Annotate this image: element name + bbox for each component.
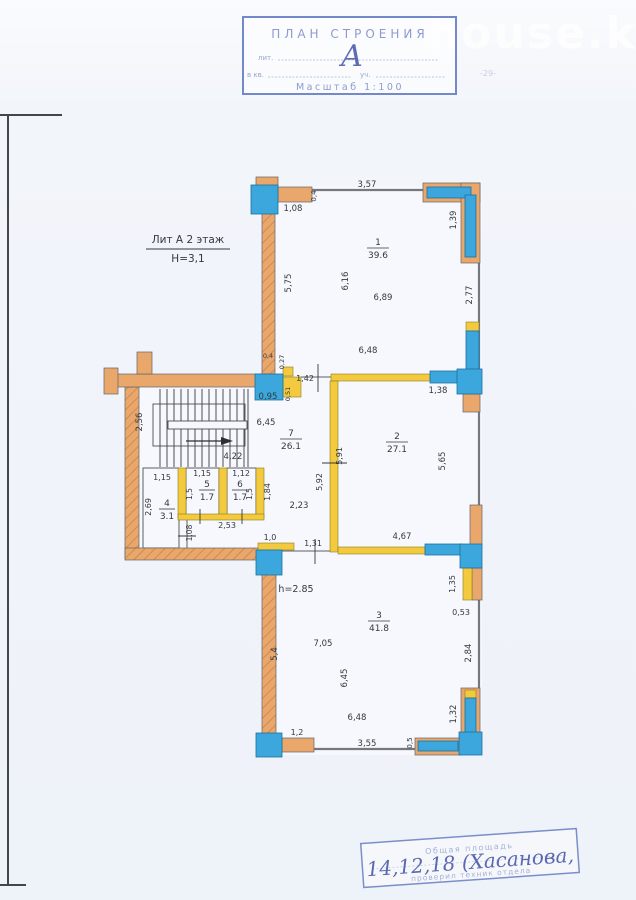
dim-label: 6,48 — [348, 713, 367, 723]
window — [465, 195, 476, 257]
dim-label: 6,89 — [374, 293, 393, 303]
dim-label: 5,65 — [438, 452, 448, 471]
dim-label: 1,42 — [296, 374, 314, 383]
pillar — [459, 732, 482, 755]
watermark-text: house.kg — [428, 8, 636, 59]
wall-segment — [108, 374, 262, 387]
dim-label: 1,15 — [193, 469, 211, 478]
partition-segment — [258, 543, 294, 550]
dim-label: 1,39 — [449, 211, 459, 230]
dim-label: 3,57 — [358, 180, 377, 190]
dim-label: 0,5 — [406, 737, 414, 748]
window — [466, 331, 479, 371]
dim-label: 1,12 — [232, 469, 250, 478]
stamp-uch-label: уч. — [360, 71, 371, 79]
partition-segment — [463, 568, 472, 600]
dim-label: 5,92 — [315, 473, 324, 491]
wall-segment — [278, 187, 312, 202]
stamp-scale: Масштаб 1:100 — [296, 82, 404, 93]
window — [427, 187, 471, 198]
dim-label: 6,16 — [341, 272, 351, 291]
dim-label: 0,95 — [259, 392, 278, 402]
scanned-floor-plan-page: house.kg -29- ПЛАН СТРОЕНИЯ лит. А в кв.… — [0, 0, 636, 900]
dim-label: 4,22 — [224, 452, 243, 462]
room-number: 5 — [204, 480, 210, 490]
dim-label: 1,84 — [263, 483, 272, 501]
stair-stringer — [168, 421, 247, 429]
dim-label: 2,84 — [464, 644, 474, 663]
partition-segment — [331, 374, 430, 381]
floor-label-line2: Н=3,1 — [171, 253, 204, 265]
room-area: 39.6 — [368, 251, 388, 261]
stamp-handwritten-letter: А — [339, 39, 364, 74]
dim-label: 1,08 — [284, 204, 303, 214]
pillar — [251, 185, 278, 214]
dim-label: 7,05 — [314, 639, 333, 649]
room-number: 2 — [394, 432, 400, 442]
dim-label: 5,75 — [284, 274, 294, 293]
dim-label: 1,2 — [291, 728, 304, 737]
stamp-lit-label: лит. — [258, 54, 273, 62]
window-cap — [465, 690, 476, 698]
dim-label: 5,4 — [270, 647, 280, 661]
dim-label: 1,5 — [185, 488, 194, 500]
wall-segment — [470, 505, 482, 548]
dim-label: 4,67 — [393, 532, 412, 542]
floor-plan-svg: house.kg -29- ПЛАН СТРОЕНИЯ лит. А в кв.… — [0, 0, 636, 900]
room-area: 26.1 — [281, 442, 301, 452]
dim-label: 0,4 — [263, 352, 273, 360]
room-area: 1.7 — [200, 493, 214, 503]
pillar — [460, 544, 482, 568]
dim-label: 0,27 — [278, 355, 286, 369]
dim-label: 2,77 — [465, 286, 475, 305]
wall-segment — [463, 394, 480, 412]
dim-label: h=2.85 — [278, 584, 313, 595]
dim-label: 1,35 — [448, 575, 457, 593]
dim-label: 1,15 — [153, 473, 171, 482]
dim-label: 2,53 — [218, 521, 236, 530]
pilaster — [137, 352, 152, 374]
pillar — [457, 369, 482, 394]
window — [418, 741, 458, 751]
wall-segment — [472, 568, 482, 600]
partition-segment — [330, 381, 338, 552]
dim-label: 5,91 — [335, 447, 344, 465]
wall-segment — [262, 188, 275, 374]
title-stamp: ПЛАН СТРОЕНИЯ лит. А в кв. уч. Масштаб 1… — [243, 17, 456, 94]
page-mark: -29- — [480, 69, 496, 78]
wall-segment — [282, 738, 314, 752]
pillar — [256, 733, 282, 757]
window — [425, 544, 462, 555]
dim-label: 2,56 — [135, 413, 145, 432]
dim-label: 2,23 — [290, 501, 309, 511]
room-area: 27.1 — [387, 445, 407, 455]
partition-segment — [338, 547, 425, 554]
partition-segment — [178, 514, 264, 520]
dim-label: 0,4 — [310, 190, 318, 202]
room-area: 3.1 — [160, 512, 174, 522]
dim-label: 0,53 — [452, 608, 470, 617]
room-number: 3 — [376, 611, 382, 621]
dim-label: 1,32 — [449, 705, 459, 724]
dim-label: 1,31 — [304, 539, 322, 548]
stamp-kv-label: в кв. — [247, 71, 264, 79]
floor-label-line1: Лит А 2 этаж — [152, 234, 225, 246]
window — [465, 698, 476, 734]
room-area: 41.8 — [369, 624, 389, 634]
partition-segment — [219, 468, 227, 518]
dim-label: 2,69 — [144, 498, 153, 516]
window-cap — [466, 322, 479, 331]
room-number: 6 — [237, 480, 243, 490]
dim-label: 6,48 — [359, 346, 378, 356]
dim-label: 6,45 — [257, 418, 276, 428]
dim-label: 6,45 — [340, 669, 350, 688]
dim-label: 3,55 — [358, 739, 377, 749]
room-number: 1 — [375, 238, 381, 248]
room-area: 1.7 — [233, 493, 247, 503]
dim-label: 0,51 — [284, 387, 292, 401]
room-number: 4 — [164, 499, 170, 509]
room-number: 7 — [288, 429, 294, 439]
pillar — [256, 550, 282, 575]
dim-label: 1,38 — [429, 386, 448, 396]
pilaster — [104, 368, 118, 394]
dim-label: 1,0 — [264, 533, 277, 542]
wall-segment — [125, 548, 262, 560]
dim-label: 1,08 — [185, 524, 194, 541]
